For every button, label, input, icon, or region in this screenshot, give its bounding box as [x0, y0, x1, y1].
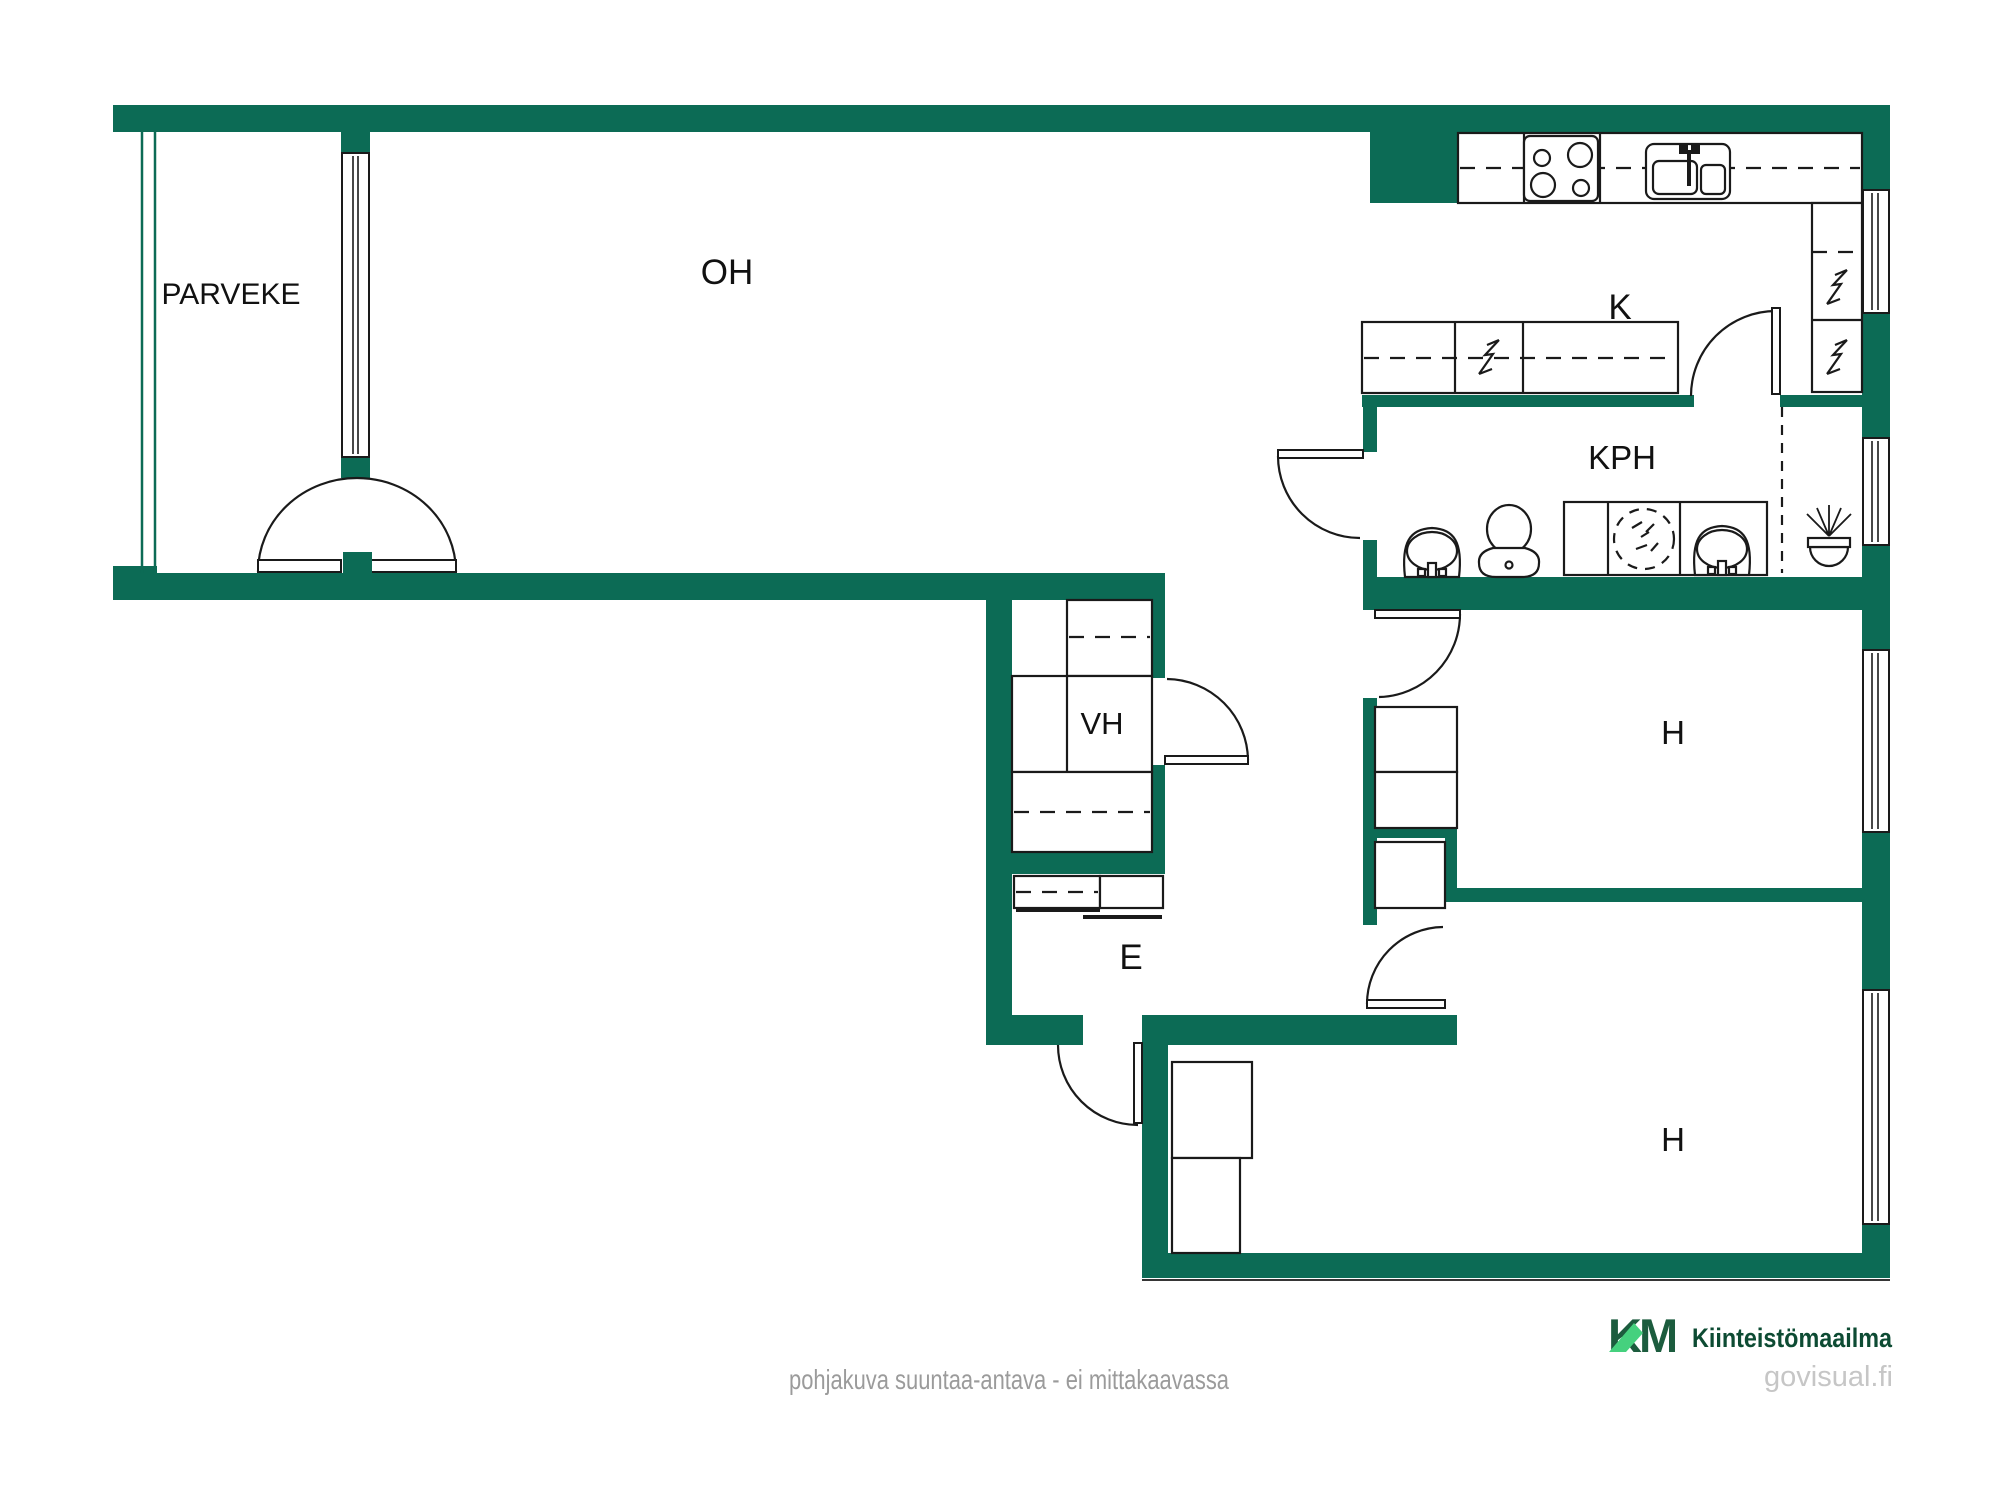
km-logo-brand-text: Kiinteistömaailma	[1692, 1323, 1893, 1353]
km-logo-monogram: KM	[1608, 1309, 1675, 1362]
wall-kph-bottom	[1363, 577, 1862, 610]
door-swing-arc	[1278, 456, 1360, 538]
wall-vh-right-upper	[1152, 600, 1165, 678]
wall-oh-bottom	[113, 573, 1165, 600]
room-label-h1: H	[1661, 714, 1685, 751]
floor-plan-page: PARVEKE OH K KPH VH E H H pohjakuva suun…	[0, 0, 2000, 1500]
disclaimer-text: pohjakuva suuntaa-antava - ei mittakaava…	[789, 1364, 1229, 1395]
window-kph	[1863, 438, 1889, 545]
wall-vh-bottom	[1012, 852, 1165, 874]
wardrobe	[1375, 772, 1457, 828]
window-balcony	[342, 153, 369, 457]
door-leaf	[1165, 756, 1248, 764]
stove-icon	[1524, 136, 1598, 201]
window-kitchen	[1863, 190, 1889, 313]
balcony-double-door	[258, 478, 456, 574]
h2-furniture	[1172, 1062, 1252, 1253]
wardrobe	[1172, 1158, 1240, 1253]
entrance-door	[1058, 1043, 1142, 1125]
wardrobe	[1375, 842, 1445, 908]
bathroom-fixtures	[1404, 407, 1851, 577]
vh-door	[1165, 679, 1248, 764]
door-swing-arc	[1379, 614, 1460, 697]
wall-vh-right-lower	[1152, 765, 1165, 852]
wall-kph-left-lower	[1363, 540, 1377, 577]
room-label-vh: VH	[1080, 706, 1123, 741]
wall-h2-bottom	[1142, 1253, 1890, 1278]
room-label-e: E	[1119, 938, 1142, 977]
wall-k-bottom-left	[1362, 395, 1694, 407]
wall-e-bottom-right	[1168, 1015, 1457, 1045]
wall-kitchen-block	[1370, 105, 1458, 203]
wall-balcony-stub-top	[341, 132, 370, 153]
door-swing-arc	[1058, 1045, 1138, 1125]
wardrobe	[1172, 1062, 1252, 1158]
balcony-edge	[142, 132, 155, 573]
room-label-parveke: PARVEKE	[162, 278, 301, 311]
watermark-text: govisual.fi	[1764, 1361, 1893, 1393]
kitchen-sink-icon	[1646, 144, 1730, 199]
footer: pohjakuva suuntaa-antava - ei mittakaava…	[789, 1309, 1893, 1395]
window-h2	[1863, 990, 1889, 1224]
counter-lower-run	[1362, 322, 1678, 393]
door-leaf	[1134, 1043, 1142, 1123]
washbasin-icon	[1694, 526, 1750, 575]
wall-h2-left	[1142, 1015, 1168, 1278]
door-leaf	[1375, 610, 1460, 618]
room-label-h2: H	[1661, 1121, 1685, 1158]
wall-e-bottom-left	[1012, 1015, 1083, 1045]
h1-door	[1375, 610, 1460, 697]
walls	[113, 105, 1890, 1280]
door-leaf	[258, 560, 341, 572]
door-swing-arc	[1367, 927, 1443, 1004]
kph-door	[1278, 450, 1363, 538]
door-swing-arc	[1691, 311, 1776, 396]
wall-balcony-door-stub	[343, 552, 372, 574]
wall-kph-left-upper	[1363, 407, 1377, 452]
door-leaf	[1278, 450, 1363, 458]
toilet-icon	[1479, 505, 1539, 577]
wall-e-left	[986, 600, 1012, 1045]
wall-oh-bottom-left-step	[113, 566, 157, 574]
wardrobe	[1375, 707, 1457, 772]
washbasin-icon	[1404, 528, 1460, 577]
wall-h1-h2-divider	[1445, 888, 1862, 902]
window-h1	[1863, 650, 1889, 832]
km-logo: KM Kiinteistömaailma	[1608, 1309, 1893, 1362]
wall-top	[113, 105, 1890, 132]
room-label-k: K	[1608, 288, 1631, 327]
h2-door	[1367, 927, 1445, 1008]
wall-balcony-stub-bottom	[341, 457, 370, 478]
door-swing-arc	[1167, 679, 1248, 760]
room-label-kph: KPH	[1588, 439, 1656, 476]
room-label-oh: OH	[701, 253, 754, 292]
floor-drain-icon	[1807, 505, 1851, 566]
fridge-column	[1812, 203, 1862, 392]
wall-k-bottom-right	[1780, 395, 1862, 407]
coat-rack	[1014, 876, 1163, 919]
door-leaf	[1367, 1000, 1445, 1008]
h1-furniture	[1375, 707, 1457, 908]
floor-plan-drawing: PARVEKE OH K KPH VH E H H pohjakuva suun…	[0, 0, 2000, 1500]
door-leaf	[1772, 308, 1780, 394]
door-leaf	[371, 560, 456, 572]
wardrobe	[1067, 600, 1152, 676]
wardrobe	[1012, 772, 1152, 852]
kitchen-door	[1691, 308, 1780, 396]
bathroom-counter	[1564, 502, 1767, 575]
